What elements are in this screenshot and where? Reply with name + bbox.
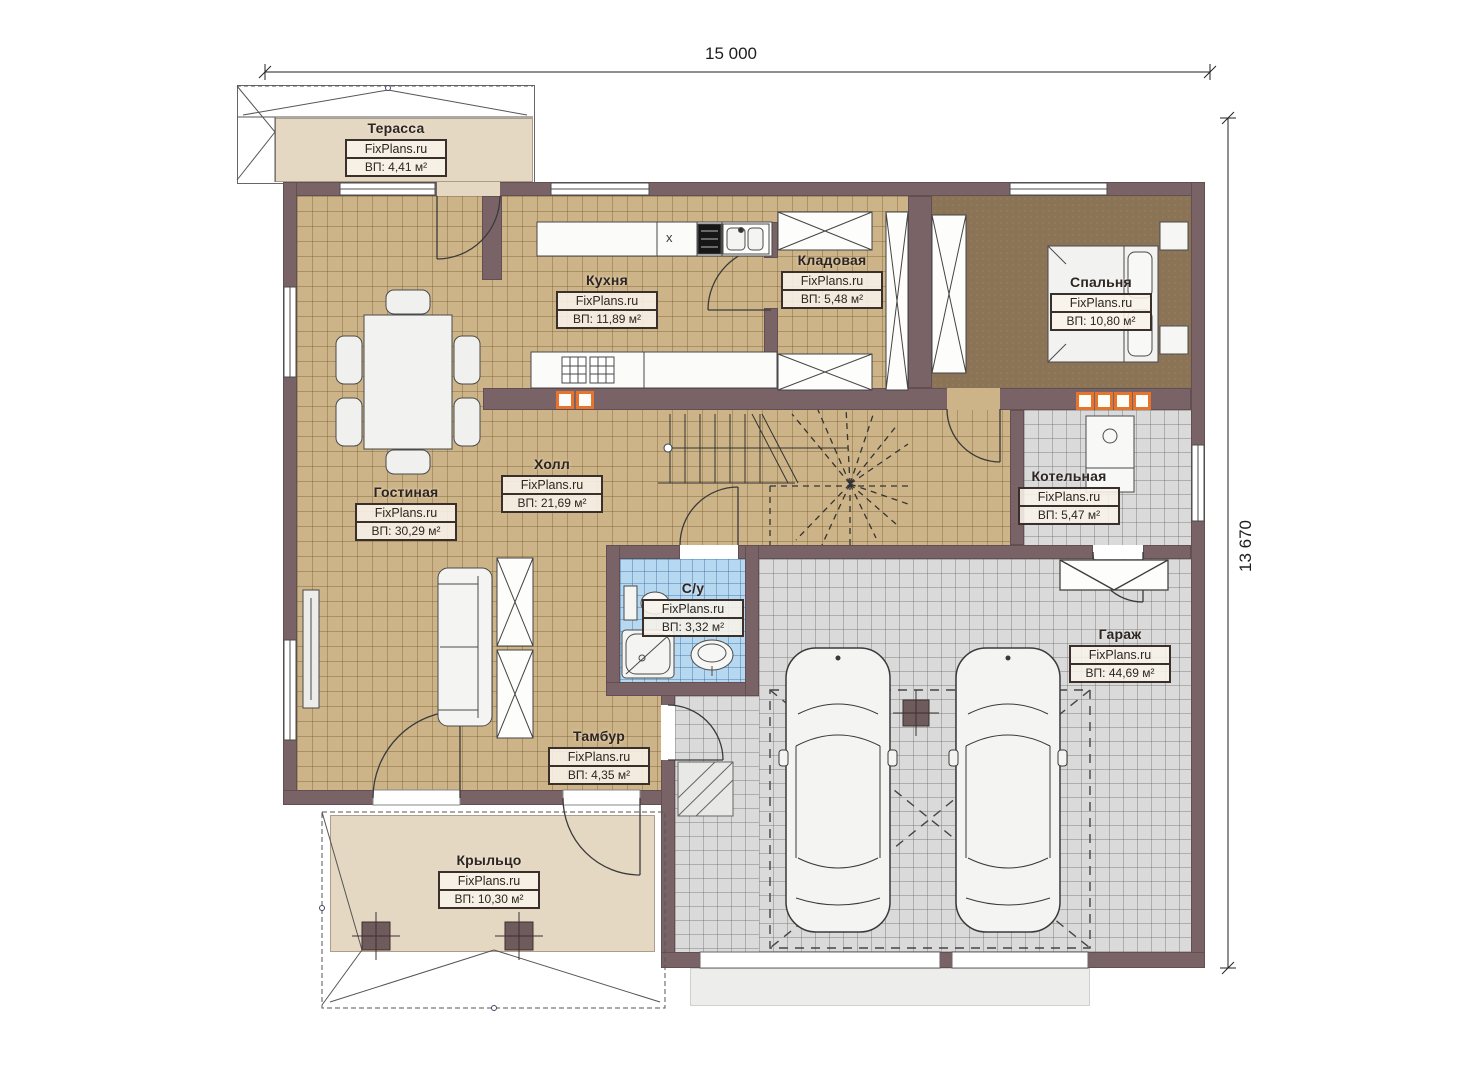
floor-plan-canvas: x 15 000 13 670 Терасса FixPlans.ru ВП: … <box>0 0 1473 1080</box>
room-label-vestibule: Тамбур FixPlans.ru ВП: 4,35 м² <box>548 728 650 785</box>
room-name: Крыльцо <box>438 852 540 868</box>
room-label-boiler-room: Котельная FixPlans.ru ВП: 5,47 м² <box>1018 468 1120 525</box>
wall-left <box>283 182 297 805</box>
room-label-garage: Гараж FixPlans.ru ВП: 44,69 м² <box>1069 626 1171 683</box>
room-name: Гостиная <box>355 484 457 500</box>
room-label-bedroom: Спальня FixPlans.ru ВП: 10,80 м² <box>1050 274 1152 331</box>
wall-bottom-garage <box>661 952 1205 968</box>
watermark-box: FixPlans.ru <box>355 503 457 523</box>
vent-icon <box>1133 392 1151 410</box>
watermark-box: FixPlans.ru <box>548 747 650 767</box>
area-box: ВП: 11,89 м² <box>556 309 658 329</box>
room-name: Холл <box>501 456 603 472</box>
room-label-porch: Крыльцо FixPlans.ru ВП: 10,30 м² <box>438 852 540 909</box>
wall-bottom-left <box>283 790 675 805</box>
vent-icon <box>1095 392 1113 410</box>
wall-kitchen-stub <box>482 196 502 280</box>
room-name: Спальня <box>1050 274 1152 290</box>
vent-icon <box>576 391 594 409</box>
dimension-width-label: 15 000 <box>705 44 757 64</box>
wall-pantry-left-a <box>764 222 778 258</box>
area-box: ВП: 5,47 м² <box>1018 505 1120 525</box>
room-label-bathroom: С/у FixPlans.ru ВП: 3,32 м² <box>642 580 744 637</box>
watermark-box: FixPlans.ru <box>781 271 883 291</box>
wall-pantry-left-b <box>764 308 778 388</box>
area-box: ВП: 21,69 м² <box>501 493 603 513</box>
room-name: Терасса <box>345 120 447 136</box>
area-box: ВП: 4,41 м² <box>345 157 447 177</box>
room-label-terrace: Терасса FixPlans.ru ВП: 4,41 м² <box>345 120 447 177</box>
wall-bath-bottom <box>606 682 759 696</box>
kitchen-cabinet-mark: x <box>666 230 673 245</box>
room-label-kitchen: Кухня FixPlans.ru ВП: 11,89 м² <box>556 272 658 329</box>
room-name: Кухня <box>556 272 658 288</box>
area-box: ВП: 44,69 м² <box>1069 663 1171 683</box>
room-label-hall: Холл FixPlans.ru ВП: 21,69 м² <box>501 456 603 513</box>
watermark-box: FixPlans.ru <box>438 871 540 891</box>
room-label-living-room: Гостиная FixPlans.ru ВП: 30,29 м² <box>355 484 457 541</box>
room-name: Котельная <box>1018 468 1120 484</box>
watermark-box: FixPlans.ru <box>556 291 658 311</box>
watermark-box: FixPlans.ru <box>501 475 603 495</box>
wall-top <box>283 182 1205 196</box>
watermark-box: FixPlans.ru <box>642 599 744 619</box>
area-box: ВП: 10,80 м² <box>1050 311 1152 331</box>
room-name: Кладовая <box>781 252 883 268</box>
wall-hall-south-3 <box>1143 545 1191 559</box>
watermark-box: FixPlans.ru <box>1018 487 1120 507</box>
wall-right <box>1191 182 1205 968</box>
vent-icon <box>1076 392 1094 410</box>
wall-bedroom-west <box>908 196 932 388</box>
area-box: ВП: 10,30 м² <box>438 889 540 909</box>
garage-apron <box>690 968 1090 1006</box>
garage-floor <box>759 559 1191 952</box>
wall-bath-left <box>606 545 620 696</box>
wall-bath-right <box>745 545 759 696</box>
room-label-pantry: Кладовая FixPlans.ru ВП: 5,48 м² <box>781 252 883 309</box>
area-box: ВП: 4,35 м² <box>548 765 650 785</box>
watermark-box: FixPlans.ru <box>1050 293 1152 313</box>
area-box: ВП: 5,48 м² <box>781 289 883 309</box>
garage-floor-west <box>675 696 759 952</box>
room-name: Тамбур <box>548 728 650 744</box>
watermark-box: FixPlans.ru <box>345 139 447 159</box>
dimension-height-label: 13 670 <box>1236 520 1256 572</box>
area-box: ВП: 30,29 м² <box>355 521 457 541</box>
vent-icon <box>1114 392 1132 410</box>
room-name: С/у <box>642 580 744 596</box>
watermark-box: FixPlans.ru <box>1069 645 1171 665</box>
area-box: ВП: 3,32 м² <box>642 617 744 637</box>
wall-hall-south-2 <box>738 545 1093 559</box>
vent-icon <box>556 391 574 409</box>
room-name: Гараж <box>1069 626 1171 642</box>
wall-garage-west <box>661 682 675 968</box>
